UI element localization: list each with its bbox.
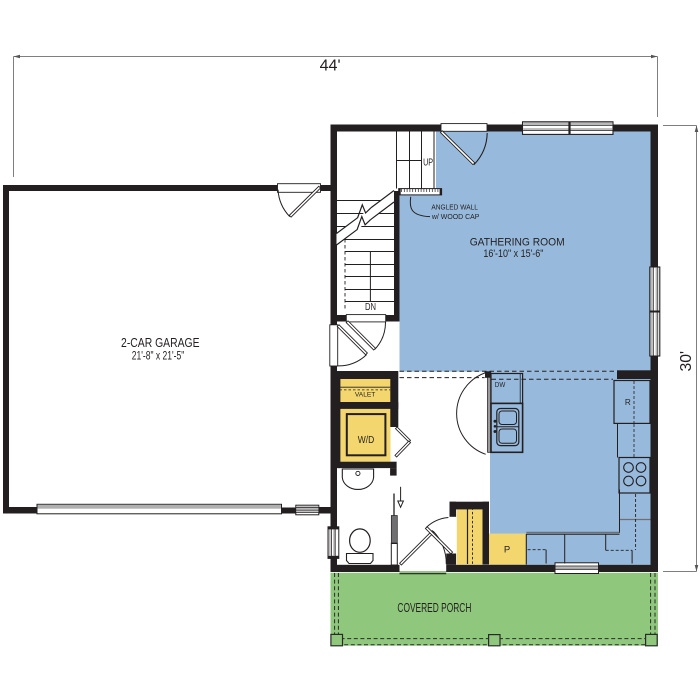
svg-text:UP: UP xyxy=(423,157,433,169)
svg-text:P: P xyxy=(504,545,510,556)
svg-text:DN: DN xyxy=(365,301,376,313)
svg-text:2-CAR GARAGE: 2-CAR GARAGE xyxy=(121,335,200,350)
svg-text:R: R xyxy=(625,398,631,407)
svg-text:W/D: W/D xyxy=(358,434,375,446)
svg-text:DW: DW xyxy=(495,380,506,389)
svg-text:ANGLED WALL: ANGLED WALL xyxy=(431,203,478,212)
svg-text:w/ WOOD CAP: w/ WOOD CAP xyxy=(431,212,479,221)
svg-text:GATHERING ROOM: GATHERING ROOM xyxy=(470,237,565,249)
svg-text:16'-10" x 15'-6": 16'-10" x 15'-6" xyxy=(483,248,543,260)
svg-text:30': 30' xyxy=(678,351,695,372)
svg-text:COVERED PORCH: COVERED PORCH xyxy=(397,600,471,615)
svg-text:44': 44' xyxy=(320,57,341,74)
svg-text:VALET: VALET xyxy=(355,391,376,398)
svg-text:21'-8" x 21'-5": 21'-8" x 21'-5" xyxy=(132,350,185,362)
